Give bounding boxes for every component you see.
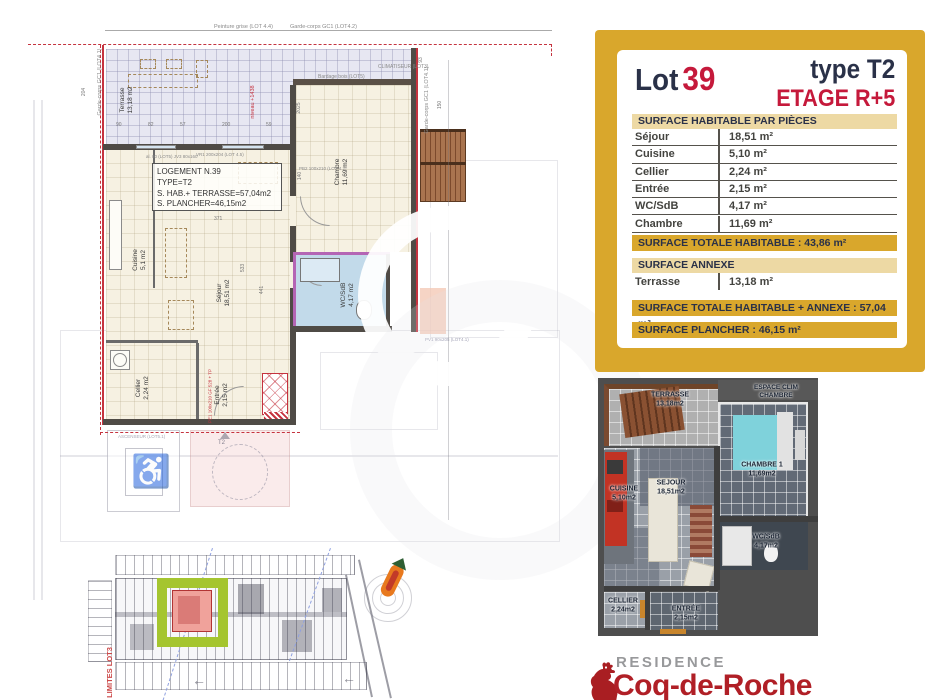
wall-segment bbox=[196, 343, 199, 419]
annexe-header: SURFACE ANNEXE bbox=[632, 258, 897, 273]
building-unit bbox=[130, 624, 154, 650]
terrace-chair bbox=[196, 60, 208, 78]
room-label-cuisine: Cuisine 5,1 m2 bbox=[132, 249, 148, 271]
p3-label-entree: ENTRÉE 2,15m2 bbox=[672, 605, 700, 623]
shaft-hatch bbox=[262, 373, 288, 415]
room-label-terrasse: Terrasse 13,18 m2 bbox=[119, 86, 135, 113]
logo-name: Coq-de-Roche bbox=[613, 669, 812, 700]
type-label: type T2 bbox=[776, 54, 895, 85]
pb2-annotation: PB2 100x210 (LOT 4.2) bbox=[299, 166, 346, 171]
underlay-line bbox=[33, 100, 35, 600]
underlay-line bbox=[41, 100, 43, 600]
vr1-annotation: VR1 200x204 (LOT 4.5) bbox=[196, 152, 244, 157]
garde-corps-left-annotation: Garde-corps GC1 (LOT4.1) bbox=[97, 49, 103, 116]
t2-label: T2 bbox=[218, 440, 225, 446]
p3-label-espace-clim: ESPACE CLIM CHAMBRE bbox=[754, 384, 798, 400]
room-label-wcsdb: WC/SdB 4,17 m2 bbox=[340, 283, 356, 308]
window bbox=[136, 145, 176, 149]
table-row: Cellier 2,24 m² bbox=[632, 164, 897, 181]
table-row: WC/SdB 4,17 m² bbox=[632, 198, 897, 215]
washer-drum bbox=[113, 353, 127, 367]
p3-label-cuisine: CUISINE 5,10m2 bbox=[610, 485, 638, 503]
table-row: Cuisine 5,10 m² bbox=[632, 146, 897, 163]
wood-screen bbox=[420, 130, 466, 202]
logement-line: LOGEMENT N.39 bbox=[157, 167, 277, 178]
wheelchair-icon: ♿ bbox=[131, 452, 171, 490]
logement-box: LOGEMENT N.39 TYPE=T2 S. HAB.+ TERRASSE=… bbox=[152, 163, 282, 211]
room-label-cellier: Cellier 2,24 m2 bbox=[135, 376, 151, 400]
lot-label: Lot bbox=[635, 62, 678, 97]
garde-corps-right-annotation: Garde-corps GC1 (LOT4.1) bbox=[424, 67, 430, 134]
table-row: Séjour 18,51 m² bbox=[632, 129, 897, 146]
boundary-dashed bbox=[28, 44, 552, 45]
bardage-annotation: Bardage bois (LOT5) bbox=[318, 74, 365, 80]
door-opening bbox=[290, 196, 296, 226]
dim-text: 93 bbox=[418, 57, 424, 63]
p3-hob bbox=[607, 460, 623, 474]
building-unit bbox=[238, 584, 264, 614]
shaft-strip bbox=[264, 412, 288, 419]
pe1-annotation: PE1 100x210 GF 528 + TP bbox=[208, 369, 213, 423]
p3-wall bbox=[645, 590, 650, 630]
peinture-annotation: Peinture grise (LOT 4.4) bbox=[214, 24, 273, 30]
logement-line: TYPE=T2 bbox=[157, 178, 277, 189]
clim-annotation: CLIMATISEUR (LOT3) bbox=[378, 64, 428, 70]
table-outline bbox=[168, 300, 194, 330]
p3-label-terrasse: TERRASSE 13,18m2 bbox=[651, 391, 689, 409]
wall-segment bbox=[293, 254, 296, 326]
direction-arrow: ← bbox=[192, 672, 206, 688]
p3-dresser bbox=[795, 430, 805, 460]
dim-text: 441 bbox=[259, 286, 265, 294]
rooster-eye bbox=[605, 666, 607, 668]
lot-highlight-unit-inner bbox=[178, 596, 200, 624]
p3-rug bbox=[690, 505, 712, 557]
dim-text: 90 bbox=[116, 122, 122, 128]
terrace-table bbox=[128, 74, 198, 88]
lot-number: 39 bbox=[682, 60, 715, 97]
dim-text: 82 bbox=[148, 122, 154, 128]
info-card: Lot 39 type T2 ETAGE R+5 SURFACE HABITAB… bbox=[617, 50, 907, 348]
dim-text: 150 bbox=[437, 101, 443, 109]
p3-wall bbox=[604, 586, 718, 591]
room-label-entree: Entrée 2,15 m2 bbox=[214, 383, 230, 407]
limites-label: LIMITES LOT3 bbox=[105, 647, 114, 698]
building-unit bbox=[322, 588, 342, 612]
window bbox=[222, 145, 264, 149]
info-panel: Lot 39 type T2 ETAGE R+5 SURFACE HABITAB… bbox=[595, 30, 925, 372]
parking-row bbox=[115, 662, 367, 690]
plan-sheet: ASCENSEUR (LOT5.1) ♿ T2 PV1 90x205 (LOT4… bbox=[0, 0, 952, 700]
lot-title: Lot 39 bbox=[635, 60, 715, 98]
direction-arrow: ← bbox=[342, 670, 356, 686]
dim-text: 2025 bbox=[296, 102, 302, 113]
parking-row bbox=[115, 555, 355, 575]
dim-text: 57 bbox=[180, 122, 186, 128]
logement-line: S. PLANCHER=46,15m2 bbox=[157, 199, 277, 210]
etage-label: ETAGE R+5 bbox=[776, 85, 895, 113]
p3-label-chambre: CHAMBRE 1 11,69m2 bbox=[741, 461, 783, 479]
dim-text: 200 bbox=[222, 122, 230, 128]
table-row: Terrasse 13,18 m² bbox=[632, 273, 897, 290]
p3-label-cellier: CELLIER 2,24m2 bbox=[608, 597, 638, 615]
room-label-chambre: Chambre 11,69 m2 bbox=[334, 159, 350, 186]
sofa-outline bbox=[165, 228, 187, 278]
building-corridor bbox=[115, 612, 347, 617]
dim-text: 59 bbox=[266, 122, 272, 128]
total-habitable-bar: SURFACE TOTALE HABITABLE : 43,86 m² bbox=[632, 235, 897, 251]
garde-corps-annotation: Garde-corps GC1 (LOT4.2) bbox=[290, 24, 357, 30]
wood-screen-rail bbox=[420, 162, 466, 165]
triangle-marker bbox=[220, 432, 230, 439]
p3-threshold bbox=[640, 600, 645, 618]
kitchen-counter bbox=[109, 200, 122, 270]
wall-segment bbox=[103, 419, 293, 425]
logement-line: S. HAB.+ TERRASSE=57,04m2 bbox=[157, 189, 277, 200]
wall-segment bbox=[106, 340, 198, 343]
table-row: Entrée 2,15 m² bbox=[632, 181, 897, 198]
boundary-dashed bbox=[551, 44, 552, 56]
bathtub bbox=[300, 258, 340, 282]
p3-threshold bbox=[660, 629, 686, 634]
surface-plancher-bar: SURFACE PLANCHER : 46,15 m² bbox=[632, 322, 897, 338]
terrace-chair bbox=[166, 59, 182, 69]
dim-line bbox=[105, 30, 552, 31]
p3-shower bbox=[722, 526, 752, 566]
al80-annotation: al. 80 (LOT5) JV3 80x160 bbox=[146, 154, 198, 159]
turning-circle bbox=[212, 444, 268, 500]
dim-text: 140 bbox=[297, 172, 303, 180]
niveau-annotation: niveau +1438 bbox=[250, 85, 256, 118]
wall-segment bbox=[103, 144, 295, 150]
p3-wall bbox=[718, 516, 818, 522]
room-label-sejour: Séjour 18,51 m2 bbox=[216, 279, 232, 306]
p3-label-wcsdb: WC/SdB 4,17m2 bbox=[752, 533, 780, 551]
total-habitable-annexe-bar: SURFACE TOTALE HABITABLE + ANNEXE : 57,0… bbox=[632, 300, 897, 316]
surface-header: SURFACE HABITABLE PAR PIÈCES bbox=[632, 114, 897, 129]
boundary-dashed bbox=[100, 432, 300, 433]
type-block: type T2 ETAGE R+5 bbox=[776, 54, 895, 113]
p3-label-sejour: SEJOUR 18,51m2 bbox=[657, 479, 686, 497]
dim-text: 371 bbox=[214, 216, 222, 222]
ascenseur-label: ASCENSEUR (LOT5.1) bbox=[118, 434, 165, 439]
terrace-chair bbox=[140, 59, 156, 69]
dim-text: 204 bbox=[81, 88, 87, 96]
dim-text: 533 bbox=[240, 264, 246, 272]
table-row: Chambre 11,69 m² bbox=[632, 216, 897, 233]
